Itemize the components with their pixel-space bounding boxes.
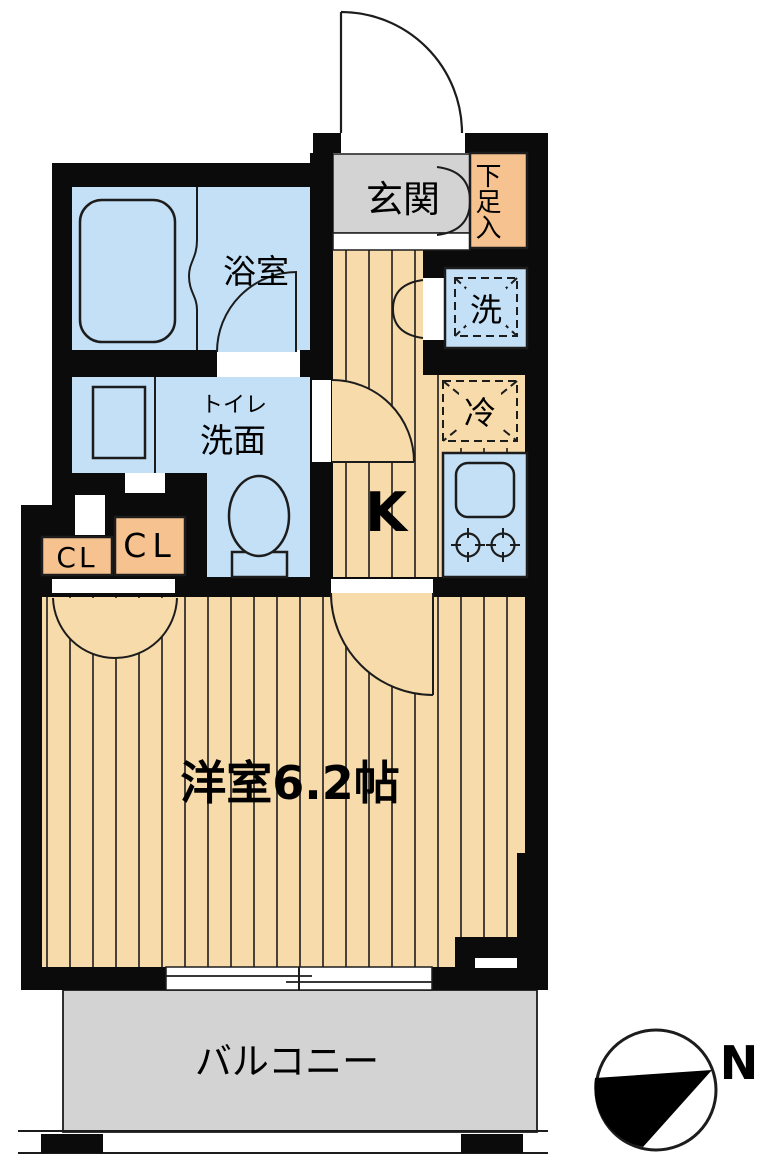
entrance-opening: [341, 133, 465, 153]
floorplan: 玄関 下足入 浴室 トイレ 洗面 洗 冷 K CL CL 洋室6.2帖 バルコニ…: [0, 0, 774, 1164]
wall-washroom-bottom: [185, 577, 333, 597]
kitchen-door-opening: [331, 579, 433, 593]
fridge-label: 冷: [464, 394, 496, 432]
kitchen-label: K: [365, 481, 409, 544]
toilet-bowl-icon: [229, 476, 289, 556]
wall-right-upper: [525, 133, 548, 853]
toilet-label: トイレ: [201, 393, 267, 418]
closet-door-opening: [52, 579, 175, 593]
washroom-door-opening: [312, 380, 331, 462]
wall-right-lower: [517, 853, 548, 940]
bathroom-label: 浴室: [223, 252, 289, 291]
balcony-divider-right: [461, 1134, 523, 1153]
wall-hall-left: [310, 153, 333, 578]
wall-under-washer: [423, 348, 548, 375]
washer-opening: [423, 278, 445, 340]
notch-closet: [75, 495, 105, 535]
shoe-storage-label: 下足入: [471, 162, 501, 240]
balcony-divider-left: [41, 1134, 103, 1153]
closet-right-label: CL: [123, 526, 176, 565]
wall-left-upper: [52, 163, 72, 475]
wall-bottom-left: [21, 967, 166, 990]
washer-label: 洗: [470, 291, 502, 329]
compass-north-label: N: [720, 1036, 759, 1090]
wall-bottom-mid: [432, 967, 455, 990]
wall-left-lower: [21, 597, 42, 990]
notch-washroom: [125, 473, 165, 493]
balcony-label: バルコニー: [195, 1040, 379, 1083]
vanity-icon: [93, 387, 145, 458]
western-room-label: 洋室6.2帖: [180, 756, 400, 810]
wall-under-shoebox: [423, 248, 548, 268]
closet-left-label: CL: [56, 541, 97, 574]
genkan-step: [333, 233, 470, 250]
bath-door-opening: [217, 350, 300, 377]
wall-bath-top: [52, 163, 310, 187]
washstand-label: 洗面: [200, 421, 266, 460]
small-window: [475, 958, 517, 968]
floorplan-canvas: 玄関 下足入 浴室 トイレ 洗面 洗 冷 K CL CL 洋室6.2帖 バルコニ…: [0, 0, 774, 1164]
bathtub-icon: [80, 200, 175, 342]
genkan-label: 玄関: [366, 178, 440, 221]
